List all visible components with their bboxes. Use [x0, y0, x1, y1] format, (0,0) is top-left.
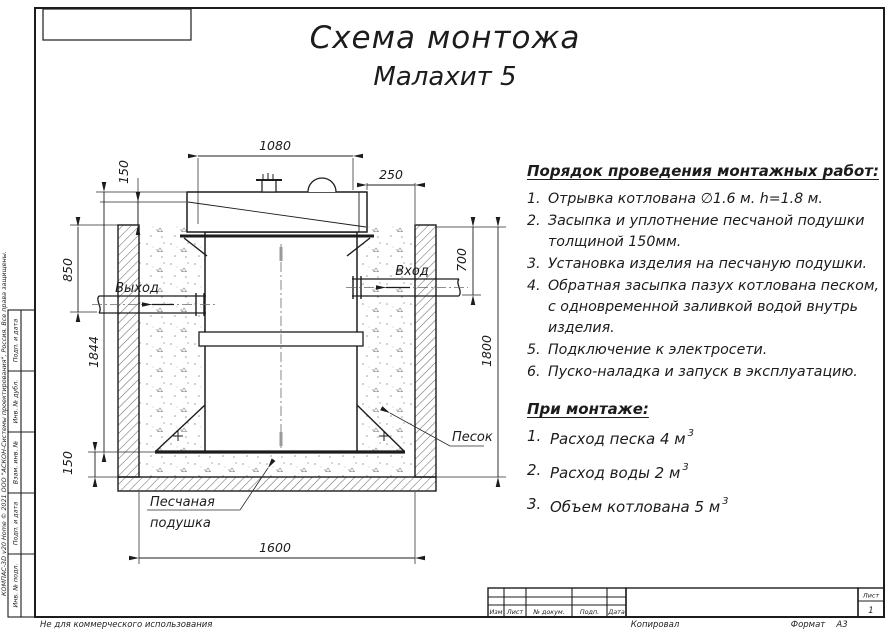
montage-heading: При монтаже:	[527, 399, 867, 419]
format-label: Формат	[791, 620, 827, 630]
step-text: Отрывка котлована ∅1.6 м. h=1.8 м.	[548, 189, 823, 210]
step-text: Обратная засыпка пазух котлована песком,…	[548, 276, 883, 339]
cubic-sup: 3	[688, 428, 694, 439]
step-number: 2.	[527, 211, 548, 253]
step-text: Подключение к электросети.	[548, 340, 767, 361]
col-izm: Изм	[490, 608, 503, 616]
dim-1800: 1800	[479, 335, 494, 367]
dim-700: 700	[454, 248, 469, 272]
item-text: Расход песка 4 м3	[550, 426, 692, 449]
sand-label: Песок	[452, 430, 493, 445]
dim-150-bottom: 150	[60, 451, 75, 475]
vent-ticks	[263, 173, 273, 180]
instruction-step: 1. Отрывка котлована ∅1.6 м. h=1.8 м.	[527, 189, 883, 210]
instruction-step: 2. Засыпка и уплотнение песчаной подушки…	[527, 211, 883, 253]
stamp-label: Подп. и дата	[12, 319, 20, 363]
pit-wall-right	[415, 225, 436, 477]
montage-item: 2. Расход воды 2 м3	[527, 460, 867, 483]
title-line-1: Схема монтожа	[195, 20, 695, 56]
step-number: 1.	[527, 189, 548, 210]
vent-pipe	[262, 180, 276, 192]
col-podp: Подп.	[580, 608, 599, 616]
instruction-step: 3. Установка изделия на песчаную подушки…	[527, 254, 883, 275]
item-text: Объем котлована 5 м3	[550, 494, 727, 517]
stamp-label: Подп. и дата	[12, 502, 20, 546]
sheet-label: Лист	[862, 592, 879, 600]
item-number: 1.	[527, 426, 550, 449]
kompas-watermark: КОМПАС-3D v20 Home © 2021 ООО "АСКОН-Сис…	[0, 251, 8, 596]
montage-item: 3. Объем котлована 5 м3	[527, 494, 867, 517]
pit-wall-left	[118, 225, 139, 477]
item-number: 3.	[527, 494, 550, 517]
title-block-labels: Изм Лист № докум. Подп. Дата Лист 1 Копи…	[40, 592, 879, 631]
cubic-sup: 3	[722, 496, 728, 507]
cushion-label-1: Песчаная	[150, 495, 215, 510]
title-line-2: Малахит 5	[195, 62, 695, 92]
lid-dome	[308, 178, 336, 192]
dim-1600: 1600	[259, 540, 291, 555]
instruction-step: 4. Обратная засыпка пазух котлована песк…	[527, 276, 883, 339]
pit-floor	[118, 477, 436, 491]
montage-notes: При монтаже: 1. Расход песка 4 м3 2. Рас…	[527, 399, 867, 528]
tank-lid	[187, 192, 367, 232]
step-number: 4.	[527, 276, 548, 339]
step-text: Засыпка и уплотнение песчаной подушки то…	[548, 211, 883, 253]
col-list: Лист	[506, 608, 523, 616]
instructions-heading: Порядок проведения монтажных работ:	[527, 161, 883, 182]
dim-850: 850	[60, 258, 75, 282]
col-data: Дата	[607, 608, 625, 616]
step-text: Установка изделия на песчаную подушки.	[548, 254, 867, 275]
outlet-label: Выход	[115, 281, 159, 296]
dim-1080: 1080	[259, 138, 291, 153]
not-for-commercial-note: Не для коммерческого использования	[40, 620, 212, 630]
step-number: 6.	[527, 362, 548, 383]
step-text: Пуско-наладка и запуск в эксплуатацию.	[548, 362, 858, 383]
item-number: 2.	[527, 460, 550, 483]
step-number: 3.	[527, 254, 548, 275]
dim-1844: 1844	[86, 336, 101, 368]
instruction-step: 5. Подключение к электросети.	[527, 340, 883, 361]
dim-150-top: 150	[116, 160, 131, 184]
stamp-label: Инв. № дубл.	[12, 380, 20, 424]
drawing-sheet: Подп. и дата Инв. № дубл. Взам. инв. № П…	[0, 0, 892, 632]
montage-item: 1. Расход песка 4 м3	[527, 426, 867, 449]
dim-250: 250	[379, 167, 403, 182]
installation-instructions: Порядок проведения монтажных работ: 1. О…	[527, 161, 883, 384]
top-left-stamp-box	[43, 9, 191, 40]
drawing-title: Схема монтожа Малахит 5	[195, 20, 695, 92]
inlet-label: Вход	[395, 264, 429, 279]
format-value: А3	[835, 620, 847, 630]
instruction-step: 6. Пуско-наладка и запуск в эксплуатацию…	[527, 362, 883, 383]
kopiroval-label: Копировал	[631, 620, 680, 630]
side-stamp-labels: Подп. и дата Инв. № дубл. Взам. инв. № П…	[12, 319, 20, 608]
step-number: 5.	[527, 340, 548, 361]
cushion-label-2: подушка	[150, 516, 211, 531]
sheet-number: 1	[868, 606, 873, 616]
stamp-label: Взам. инв. №	[12, 440, 20, 484]
col-ndokum: № докум.	[532, 608, 565, 616]
stamp-label: Инв. № подл.	[12, 563, 20, 607]
cubic-sup: 3	[682, 462, 688, 473]
inlet-pipe-group	[346, 276, 468, 299]
item-text: Расход воды 2 м3	[550, 460, 687, 483]
